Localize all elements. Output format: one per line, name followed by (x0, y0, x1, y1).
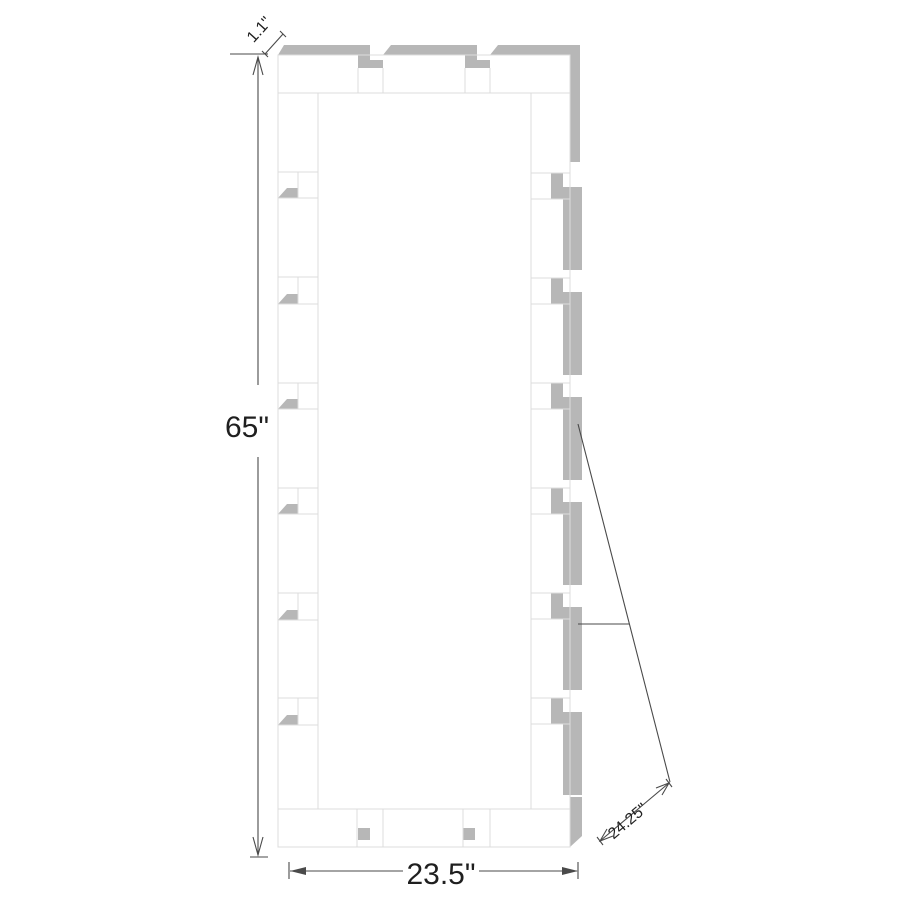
dimension-width: 23.5" (289, 858, 578, 891)
left-notch-bevel (278, 294, 298, 304)
diagonal-extension-lines (578, 424, 670, 782)
top-notch-floor-1 (370, 60, 383, 68)
right-step-bevel (551, 698, 582, 795)
depth-dimension-label: 1.1" (244, 14, 275, 46)
top-bevel-segment-right-corner (490, 45, 580, 162)
right-step-bevel (551, 173, 582, 270)
left-notch-bevel (278, 399, 298, 409)
right-step-bevel (551, 278, 582, 375)
diagonal-dimension-label: 24.25" (605, 800, 651, 842)
width-dimension-arrow-right (562, 867, 578, 875)
left-notch-bevel (278, 715, 298, 725)
frame-top-piece-divisions (358, 68, 490, 93)
right-step-bevel (551, 593, 582, 690)
width-dimension-arrow-left (290, 867, 306, 875)
dimension-depth: 1.1" (244, 14, 286, 57)
dimension-diagonal: 24.25" (578, 424, 672, 845)
top-bevel-segment-middle (383, 45, 477, 68)
left-notch-bevel (278, 610, 298, 620)
left-notch-bevel (278, 504, 298, 514)
height-dimension-lines (230, 54, 268, 857)
bottom-notch-bevel (463, 828, 475, 840)
frame-inner-outline (318, 93, 531, 809)
frame-top-edge-bevel (278, 45, 580, 162)
frame-left-piece-divisions (278, 172, 318, 725)
width-dimension-label: 23.5" (406, 858, 475, 891)
dimension-height: 65" (225, 54, 269, 857)
frame-outer-outline (278, 55, 570, 847)
frame-right-edge-steps (551, 173, 582, 795)
top-notch-floor-2 (477, 60, 490, 68)
frame-bottom-right-bevel (570, 797, 582, 847)
top-bevel-segment-left (278, 45, 370, 68)
right-step-bevel (551, 488, 582, 585)
frame-drawing (278, 45, 582, 847)
frame-left-edge-notches (278, 188, 298, 725)
bottom-notch-bevel (358, 828, 370, 840)
left-notch-bevel (278, 188, 298, 198)
mirror-frame-dimension-diagram: 65" 23.5" 1.1" 24.25" (0, 0, 900, 900)
height-dimension-label: 65" (225, 411, 269, 444)
right-step-bevel (551, 383, 582, 480)
frame-band-divisions (278, 93, 570, 809)
